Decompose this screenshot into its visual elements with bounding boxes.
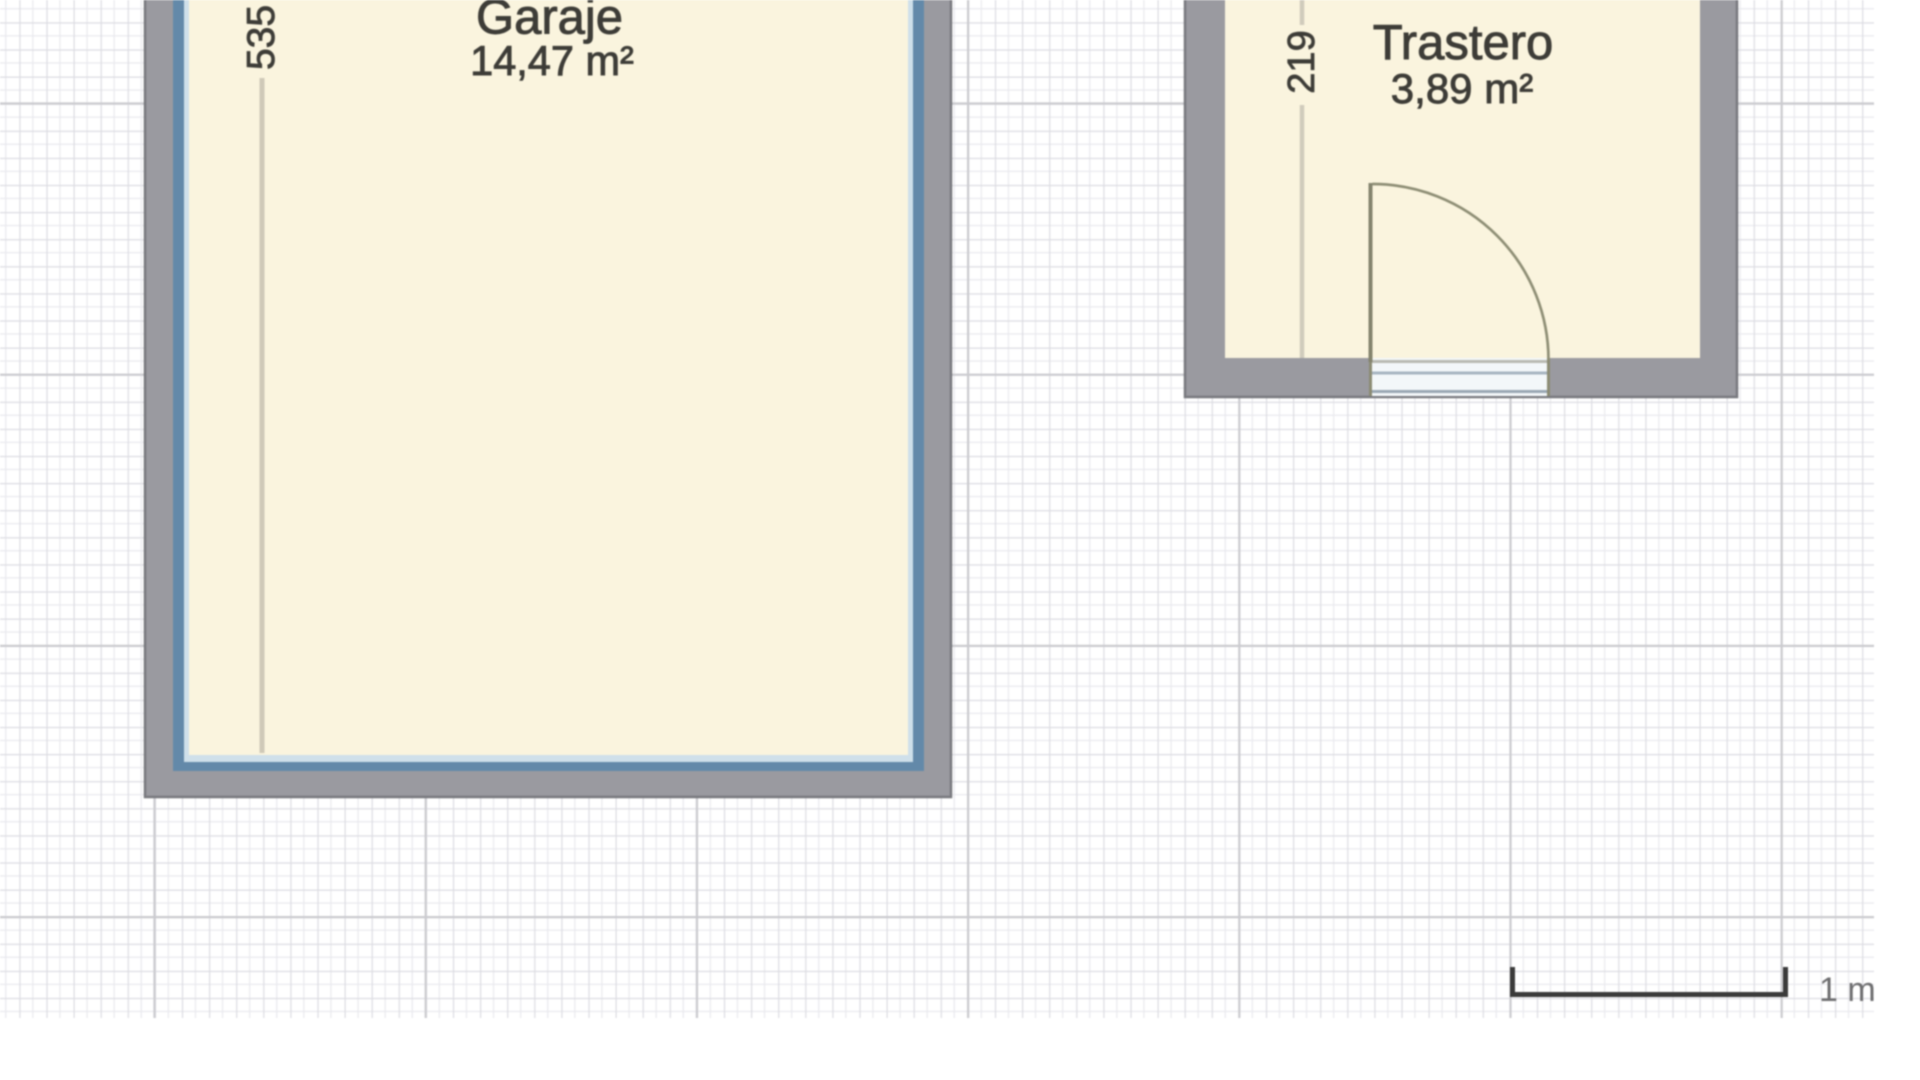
svg-text:3,89 m²: 3,89 m²: [1391, 65, 1533, 112]
svg-text:Trastero: Trastero: [1373, 16, 1554, 70]
svg-text:14,47 m²: 14,47 m²: [470, 37, 634, 84]
svg-text:219: 219: [1281, 30, 1323, 93]
svg-text:535: 535: [240, 5, 283, 70]
svg-text:1 m: 1 m: [1819, 971, 1876, 1009]
